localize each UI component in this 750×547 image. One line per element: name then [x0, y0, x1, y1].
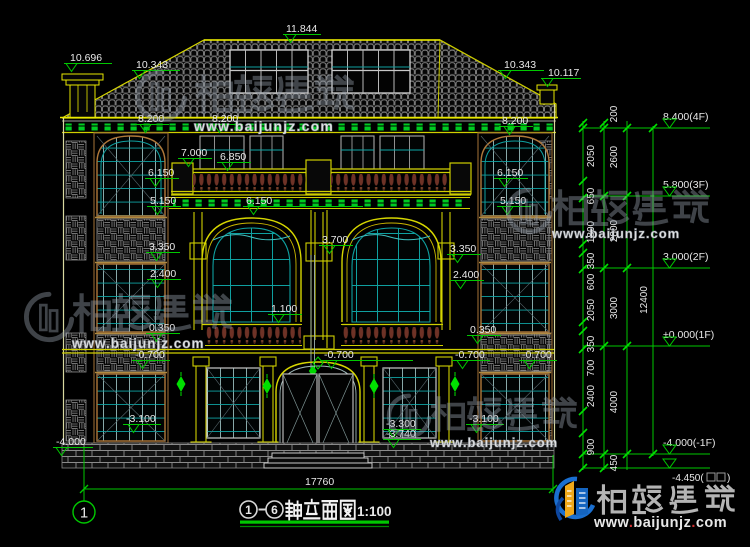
svg-text:2050: 2050 — [586, 298, 597, 321]
svg-text:3000: 3000 — [609, 296, 620, 319]
svg-text:www.baijunjz.com: www.baijunjz.com — [193, 118, 334, 134]
svg-text:11.844: 11.844 — [286, 23, 317, 35]
svg-text:6.150: 6.150 — [497, 167, 523, 179]
svg-text:www.baijunjz.com: www.baijunjz.com — [71, 336, 205, 351]
svg-text:1.100: 1.100 — [271, 303, 297, 315]
svg-text:5.150: 5.150 — [150, 195, 176, 207]
svg-text:3.700: 3.700 — [322, 234, 348, 246]
svg-text:1: 1 — [80, 505, 88, 522]
svg-text:10.117: 10.117 — [548, 67, 579, 79]
svg-text:-4.000(-1F): -4.000(-1F) — [663, 437, 716, 449]
svg-text:-4.000: -4.000 — [56, 436, 86, 448]
svg-text:3.350: 3.350 — [149, 241, 175, 253]
svg-text:200: 200 — [609, 105, 620, 122]
svg-text:2.400: 2.400 — [453, 269, 479, 281]
svg-text:6: 6 — [271, 503, 278, 517]
svg-text:6.150: 6.150 — [148, 167, 174, 179]
svg-text:900: 900 — [586, 438, 597, 455]
svg-text:www.baijunjz.com: www.baijunjz.com — [551, 226, 680, 241]
svg-text:350: 350 — [586, 252, 597, 269]
svg-text:12400: 12400 — [639, 286, 650, 314]
svg-text:350: 350 — [586, 335, 597, 352]
svg-text:0.350: 0.350 — [470, 324, 496, 336]
svg-text:8.400(4F): 8.400(4F) — [663, 111, 709, 123]
svg-text:): ) — [727, 473, 730, 484]
svg-text:6.150: 6.150 — [246, 195, 272, 207]
svg-text:600: 600 — [586, 273, 597, 290]
svg-text:10.343: 10.343 — [136, 59, 168, 71]
svg-text:450: 450 — [609, 454, 620, 471]
svg-text:2600: 2600 — [609, 145, 620, 168]
svg-text:2.400: 2.400 — [150, 268, 176, 280]
svg-text:3.350: 3.350 — [450, 243, 476, 255]
svg-text:3.000(2F): 3.000(2F) — [663, 251, 709, 263]
svg-text:±0.000(1F): ±0.000(1F) — [663, 329, 714, 341]
svg-text:6.850: 6.850 — [220, 151, 246, 163]
svg-text:8.200: 8.200 — [502, 115, 528, 127]
svg-text:17760: 17760 — [305, 476, 334, 488]
svg-text:5.800(3F): 5.800(3F) — [663, 179, 709, 191]
svg-text:10.696: 10.696 — [70, 52, 102, 64]
svg-text:-4.450(: -4.450( — [672, 473, 704, 484]
svg-text:4000: 4000 — [609, 390, 620, 413]
svg-text:2050: 2050 — [586, 144, 597, 167]
svg-text:-0.700: -0.700 — [522, 349, 552, 361]
svg-text:www.baijunjz.com: www.baijunjz.com — [593, 515, 727, 531]
svg-text:1: 1 — [245, 503, 252, 517]
svg-text:2400: 2400 — [586, 384, 597, 407]
svg-text:10.343: 10.343 — [504, 59, 536, 71]
svg-text:-0.700: -0.700 — [455, 349, 485, 361]
svg-text:700: 700 — [586, 359, 597, 376]
svg-text:www.baijunjz.com: www.baijunjz.com — [429, 435, 558, 450]
svg-text:7.000: 7.000 — [181, 147, 207, 159]
svg-text:1:100: 1:100 — [357, 504, 392, 519]
svg-text:-0.700: -0.700 — [324, 349, 354, 361]
svg-text:-3.100: -3.100 — [126, 413, 156, 425]
